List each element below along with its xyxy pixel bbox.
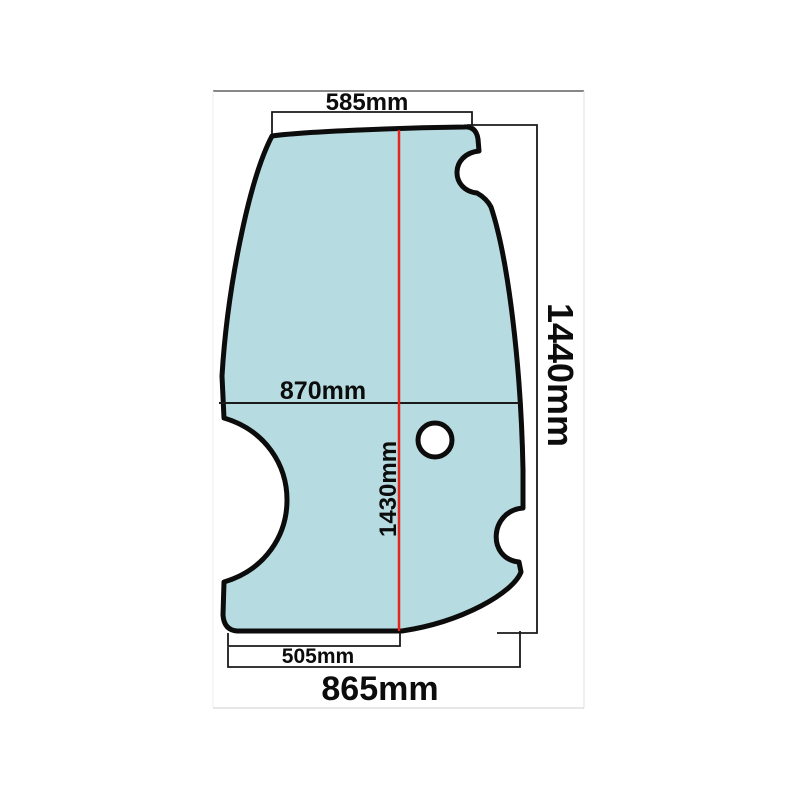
bolt-hole [418, 423, 452, 457]
label-overall-height: 1440mm [540, 303, 581, 447]
glass-dimension-diagram: 585mm 870mm 1440mm 1430mm 505mm 865mm [0, 0, 800, 800]
label-mid-width: 870mm [280, 377, 366, 405]
label-bottom-inner-width: 505mm [282, 645, 354, 668]
product-diagram-canvas: 585mm 870mm 1440mm 1430mm 505mm 865mm [0, 0, 800, 800]
dim-bracket-865 [228, 631, 520, 667]
glass-panel-shape [222, 127, 523, 631]
label-top-width: 585mm [326, 89, 409, 116]
label-center-height: 1430mm [375, 441, 402, 537]
label-overall-width: 865mm [321, 670, 438, 708]
